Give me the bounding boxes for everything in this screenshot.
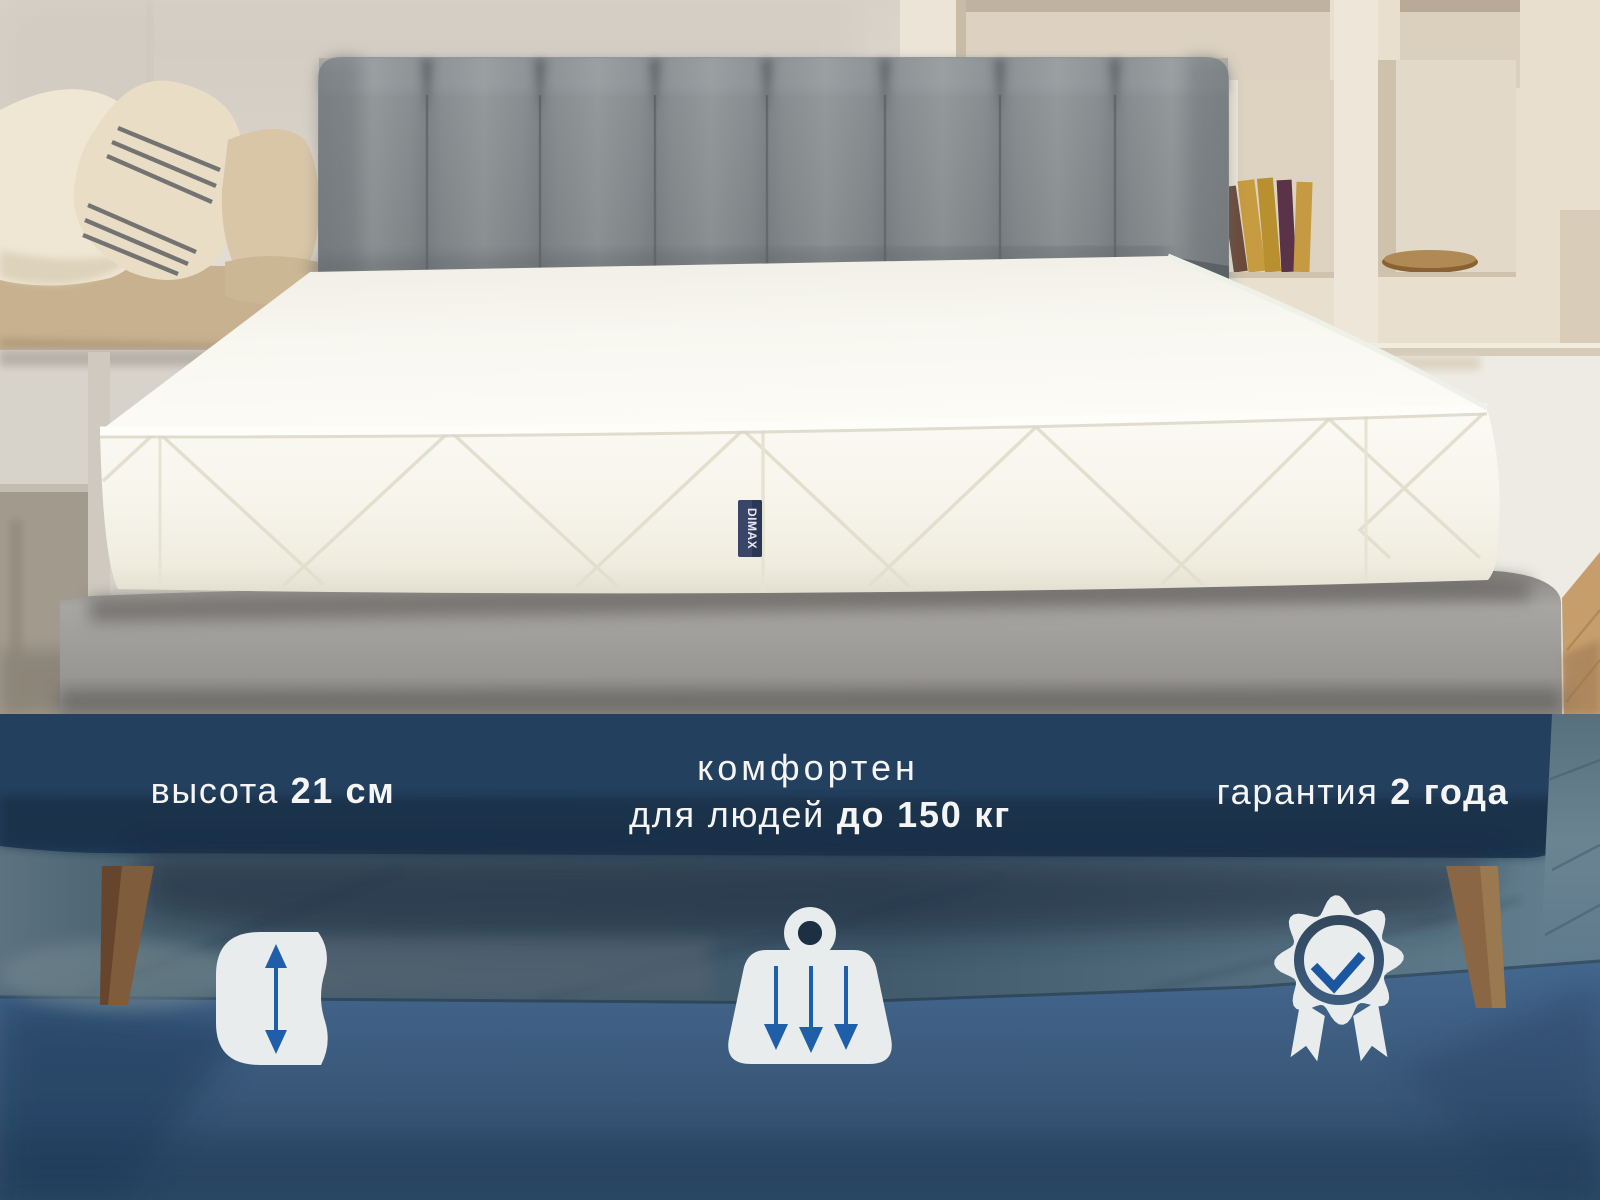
svg-text:комфортен: комфортен [697,747,919,788]
svg-text:DIMAX: DIMAX [745,508,759,549]
svg-text:для людей до 150 кг: для людей до 150 кг [629,794,1011,835]
svg-text:гарантия 2 года: гарантия 2 года [1217,771,1510,812]
svg-text:высота 21 см: высота 21 см [151,770,396,811]
